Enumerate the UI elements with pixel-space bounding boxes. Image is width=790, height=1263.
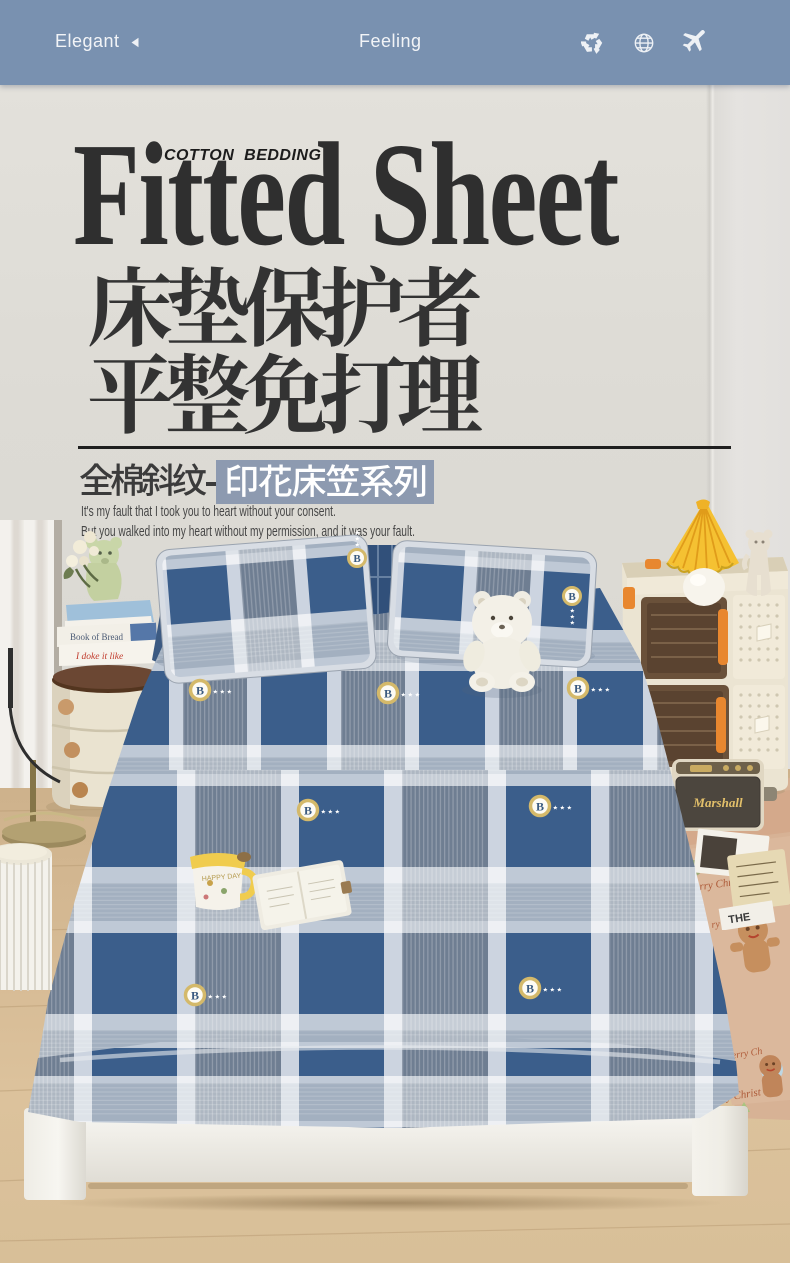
svg-text:B: B — [353, 553, 361, 565]
svg-text:B: B — [304, 804, 312, 818]
svg-text:B: B — [568, 591, 576, 603]
svg-text:B: B — [196, 684, 204, 698]
svg-text:B: B — [574, 682, 582, 696]
svg-text:B: B — [526, 982, 534, 996]
svg-text:B: B — [384, 687, 392, 701]
svg-text:B: B — [191, 989, 199, 1003]
svg-text:B: B — [536, 800, 544, 814]
